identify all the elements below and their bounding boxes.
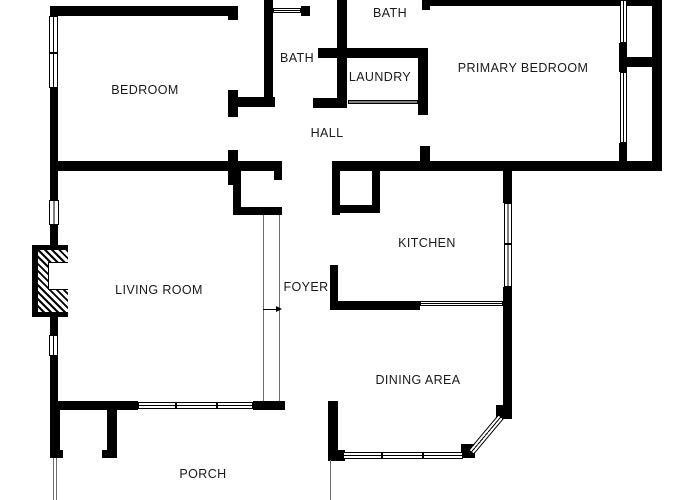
wall <box>619 43 627 72</box>
window <box>273 8 301 13</box>
window <box>343 452 463 459</box>
wall <box>503 163 512 203</box>
wall <box>332 205 380 213</box>
room-label-foyer: FOYER <box>283 280 328 294</box>
rail-line <box>330 460 331 500</box>
room-label-hall: HALL <box>311 126 344 140</box>
window <box>49 200 59 225</box>
room-label-primary-bedroom: PRIMARY BEDROOM <box>458 61 589 75</box>
wall <box>274 168 282 180</box>
wall <box>228 90 238 117</box>
wall <box>50 315 58 335</box>
wall <box>50 450 63 458</box>
wall <box>301 6 310 16</box>
window-mullion <box>422 452 424 459</box>
rail-line <box>263 215 264 401</box>
wall <box>50 88 58 164</box>
wall <box>625 57 662 67</box>
bay-window <box>468 414 504 455</box>
rail-line <box>56 458 57 500</box>
wall <box>253 401 285 410</box>
window <box>138 402 253 409</box>
wall <box>330 301 420 310</box>
wall <box>418 48 428 115</box>
window <box>620 0 627 43</box>
wall <box>652 0 662 171</box>
room-label-bath-primary: BATH <box>373 6 407 20</box>
room-label-porch: PORCH <box>179 467 226 481</box>
wall <box>233 207 282 215</box>
window <box>420 301 503 306</box>
wall <box>50 161 282 171</box>
wall <box>228 10 238 20</box>
entry-arrow <box>263 309 276 310</box>
wall <box>619 143 627 171</box>
window-mullion <box>49 52 58 54</box>
window-mullion <box>175 402 177 409</box>
wall <box>264 0 273 103</box>
wall <box>503 287 512 415</box>
window <box>49 335 58 356</box>
wall <box>233 97 275 107</box>
wall <box>50 6 238 16</box>
wall <box>50 225 58 247</box>
window-mullion <box>504 243 512 245</box>
room-label-laundry: LAUNDRY <box>349 70 411 84</box>
window-mullion <box>216 402 218 409</box>
room-label-kitchen: KITCHEN <box>398 236 456 250</box>
room-label-dining-area: DINING AREA <box>376 373 461 387</box>
entry-arrow-head <box>276 306 282 312</box>
wall <box>50 356 58 405</box>
wall <box>50 401 138 410</box>
room-label-bedroom: BEDROOM <box>111 83 178 97</box>
rail-line <box>53 458 54 500</box>
window <box>348 100 418 104</box>
wall <box>332 161 662 171</box>
window-mullion <box>381 452 383 459</box>
wall <box>50 171 58 200</box>
window <box>620 72 627 143</box>
window <box>504 203 512 287</box>
floorplan-canvas: BEDROOMBATHBATHLAUNDRYPRIMARY BEDROOMHAL… <box>0 0 700 500</box>
wall <box>313 98 347 108</box>
room-label-living-room: LIVING ROOM <box>115 283 203 297</box>
wall <box>318 48 425 58</box>
wall <box>102 450 117 458</box>
room-label-bath-hall: BATH <box>280 51 314 65</box>
fireplace-firebox <box>48 262 68 290</box>
